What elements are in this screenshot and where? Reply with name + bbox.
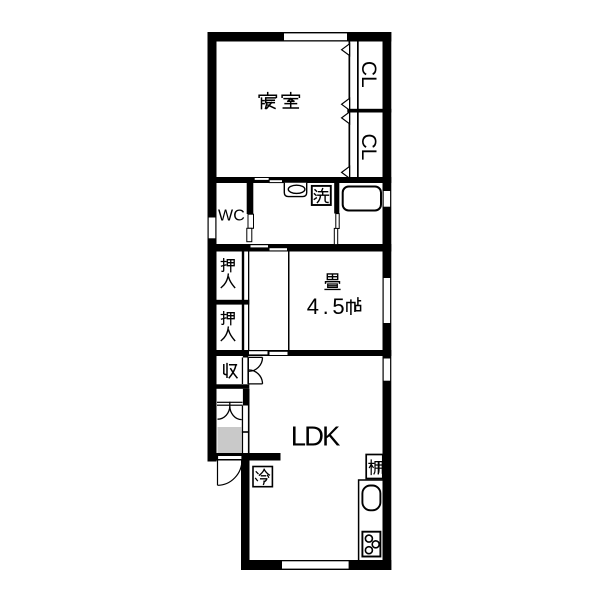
svg-text:LDK: LDK xyxy=(291,421,341,452)
svg-text:CL: CL xyxy=(357,61,380,88)
svg-text:4.5: 4.5 xyxy=(307,294,348,319)
svg-text:CL: CL xyxy=(357,133,380,160)
svg-text:WC: WC xyxy=(218,207,245,224)
